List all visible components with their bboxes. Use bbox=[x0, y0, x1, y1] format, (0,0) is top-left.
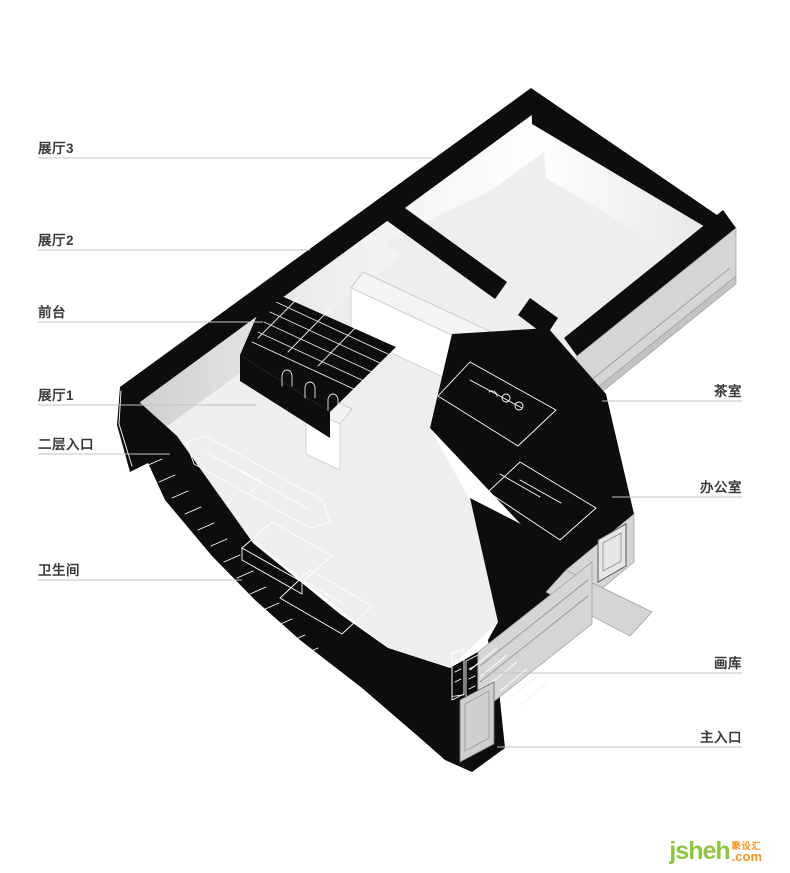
label-main-entrance: 主入口 bbox=[700, 729, 742, 745]
label-tearoom: 茶室 bbox=[713, 383, 742, 399]
watermark-logo: jsheh 聚设汇 .com bbox=[669, 841, 762, 862]
label-gallery: 画库 bbox=[714, 655, 742, 671]
label-reception: 前台 bbox=[38, 304, 66, 320]
label-restroom: 卫生间 bbox=[38, 562, 80, 578]
watermark-tld: .com bbox=[732, 851, 762, 862]
label-upper-entry: 二层入口 bbox=[38, 437, 94, 452]
label-office: 办公室 bbox=[700, 479, 742, 495]
label-hall3: 展厅3 bbox=[38, 141, 74, 156]
label-hall2: 展厅2 bbox=[38, 233, 74, 248]
label-hall1: 展厅1 bbox=[38, 388, 74, 403]
axonometric-plan-canvas: 展厅3 展厅2 前台 展厅1 二层入口 卫生间 茶室 办公室 画库 主入口 bbox=[0, 0, 790, 868]
watermark-name: jsheh bbox=[669, 841, 729, 862]
plan-drawing: 展厅3 展厅2 前台 展厅1 二层入口 卫生间 茶室 办公室 画库 主入口 bbox=[0, 0, 790, 868]
